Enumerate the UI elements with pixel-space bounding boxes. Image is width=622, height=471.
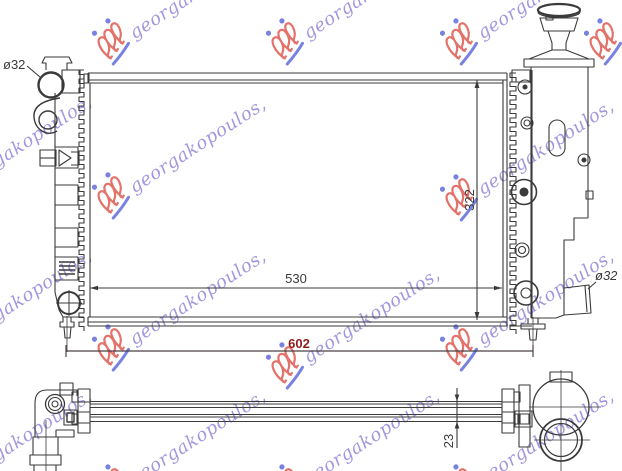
inlet-pipe-opening <box>39 73 64 98</box>
left-tank <box>34 57 84 352</box>
inlet-diameter-label: ø32 <box>3 57 25 72</box>
core-bottom-bar <box>88 317 507 326</box>
filler-cap <box>538 4 580 16</box>
core-width-label: 530 <box>285 271 307 286</box>
plan-left-elbow <box>30 383 90 471</box>
hose-bend <box>39 111 57 129</box>
right-serrated-edge <box>510 70 538 334</box>
outlet-diameter-label: ø32 <box>595 268 618 283</box>
plan-view <box>30 370 601 471</box>
inlet-diameter-leader <box>27 66 40 77</box>
overall-width-label: 602 <box>288 336 310 351</box>
outlet-pipe <box>564 285 591 315</box>
front-view <box>27 4 596 357</box>
plan-right-tank <box>502 370 601 471</box>
left-serrated-edge <box>79 70 84 331</box>
core-top-bar <box>84 73 507 83</box>
core-depth-label: 23 <box>441 434 456 448</box>
core-slab <box>90 402 502 422</box>
core-height-label: 322 <box>462 189 477 211</box>
radiator-drawing-canvas: georgakopoulos,georgakopoulos,georgakopo… <box>0 0 622 471</box>
dimension-core-width <box>90 286 502 291</box>
radiator-technical-drawing: ø32 530 322 602 ø32 23 <box>0 0 622 471</box>
